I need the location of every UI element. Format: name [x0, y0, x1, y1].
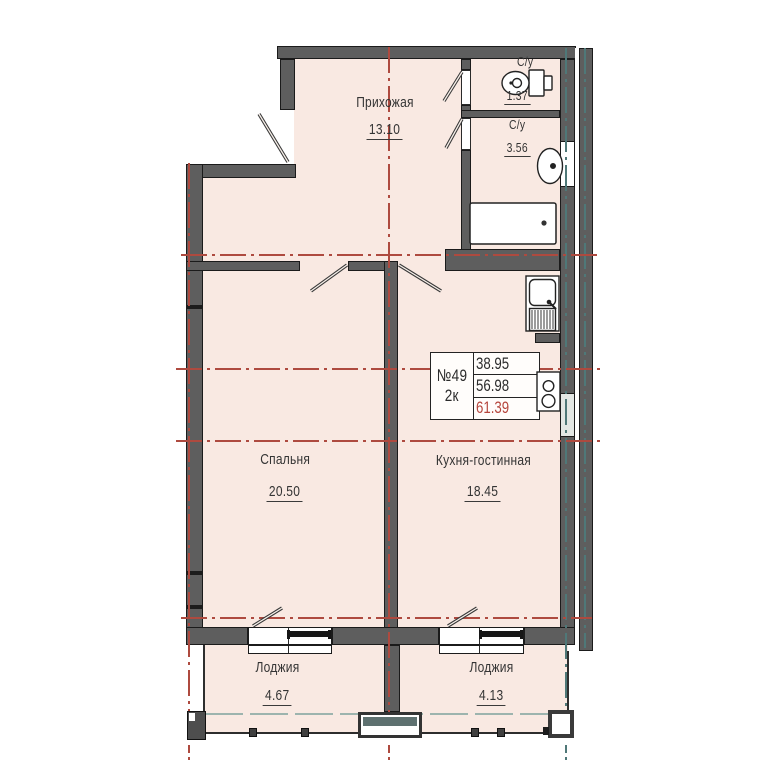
wc-big-area: 3.56	[504, 140, 530, 157]
door-leaf-entrance	[259, 114, 288, 162]
loggia-left-name: Лоджия	[255, 660, 299, 677]
loggia-right-area-label: 4.13	[421, 688, 561, 705]
floor-plan: №49 2к 38.95 56.98 61.39	[0, 0, 782, 782]
plan-linework	[0, 0, 782, 782]
wc-big-name: С/у	[509, 118, 525, 132]
wc-small-area-label: 1.37	[487, 89, 547, 103]
wc-big-area-label: 3.56	[487, 141, 547, 155]
bathtub-icon	[470, 203, 556, 244]
door-leaf-balcony-right	[448, 608, 477, 626]
hallway-name: Прихожая	[356, 95, 414, 112]
bedroom-label: Спальня	[215, 452, 355, 469]
loggia-left-area-label: 4.67	[207, 688, 347, 705]
wc-big-label: С/у	[487, 118, 547, 132]
bedroom-area-label: 20.50	[215, 484, 355, 501]
kitchen-area-label: 18.45	[400, 484, 566, 501]
kitchen-name: Кухня-гостинная	[435, 453, 530, 470]
bedroom-name: Спальня	[260, 452, 310, 469]
door-leaf-bedroom	[311, 265, 347, 291]
wc-small-area: 1.37	[504, 88, 530, 105]
loggia-left-area: 4.67	[262, 687, 291, 706]
bedroom-area: 20.50	[267, 483, 303, 502]
door-leaf-wc-big	[446, 119, 462, 148]
wc-small-name: С/у	[517, 55, 533, 69]
hallway-label: Прихожая	[325, 95, 445, 112]
door-leaf-balcony-left	[253, 608, 282, 626]
door-leaf-wc-small	[444, 72, 462, 101]
hallway-area: 13.10	[367, 121, 403, 140]
loggia-left-label: Лоджия	[207, 660, 347, 677]
kitchen-sink-icon	[526, 276, 559, 331]
loggia-right-name: Лоджия	[469, 660, 513, 677]
loggia-right-area: 4.13	[476, 687, 505, 706]
wc-small-label: С/у	[495, 55, 555, 69]
hallway-area-label: 13.10	[325, 122, 445, 139]
loggia-right-label: Лоджия	[421, 660, 561, 677]
kitchen-area: 18.45	[465, 483, 501, 502]
stove-icon	[537, 372, 560, 411]
kitchen-label: Кухня-гостинная	[400, 453, 566, 470]
door-leaf-kitchen	[399, 265, 441, 291]
